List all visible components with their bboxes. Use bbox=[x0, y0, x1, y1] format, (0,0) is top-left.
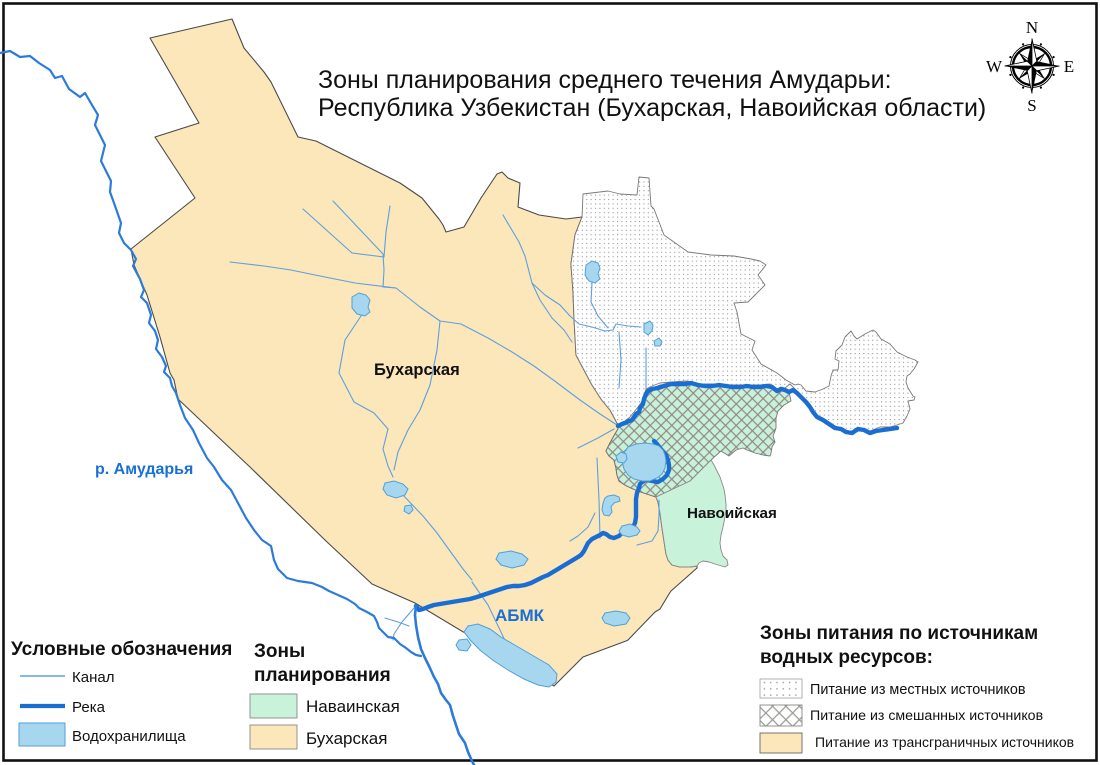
svg-text:Питание из местных источников: Питание из местных источников bbox=[810, 682, 1026, 698]
svg-text:водных ресурсов:: водных ресурсов: bbox=[760, 647, 933, 668]
svg-text:Питание из смешанных источнико: Питание из смешанных источников bbox=[810, 708, 1043, 724]
svg-text:Канал: Канал bbox=[72, 669, 114, 686]
svg-text:АБМК: АБМК bbox=[495, 606, 545, 625]
svg-text:Бухарская: Бухарская bbox=[374, 361, 460, 379]
svg-text:Бухарская: Бухарская bbox=[306, 729, 387, 748]
svg-text:Зоны планирования среднего теч: Зоны планирования среднего течения Амуда… bbox=[318, 66, 892, 94]
svg-text:Водохранилища: Водохранилища bbox=[72, 728, 186, 745]
svg-text:Навоийская: Навоийская bbox=[687, 505, 777, 522]
svg-text:Река: Река bbox=[72, 699, 106, 716]
svg-text:планирования: планирования bbox=[254, 665, 391, 686]
svg-text:Республика Узбекистан (Бухарск: Республика Узбекистан (Бухарская, Навоий… bbox=[318, 94, 986, 122]
svg-text:S: S bbox=[1027, 96, 1036, 115]
svg-text:W: W bbox=[986, 57, 1003, 76]
svg-text:Условные обозначения: Условные обозначения bbox=[11, 639, 232, 660]
svg-text:Зоны: Зоны bbox=[254, 641, 305, 662]
svg-text:E: E bbox=[1064, 57, 1074, 76]
svg-text:р. Амударья: р. Амударья bbox=[95, 461, 193, 478]
svg-text:Зоны питания по источникам: Зоны питания по источникам bbox=[760, 623, 1038, 644]
svg-text:Наваинская: Наваинская bbox=[306, 697, 400, 716]
svg-text:N: N bbox=[1026, 18, 1038, 37]
svg-text:Питание из трансграничных исто: Питание из трансграничных источников bbox=[815, 734, 1074, 750]
